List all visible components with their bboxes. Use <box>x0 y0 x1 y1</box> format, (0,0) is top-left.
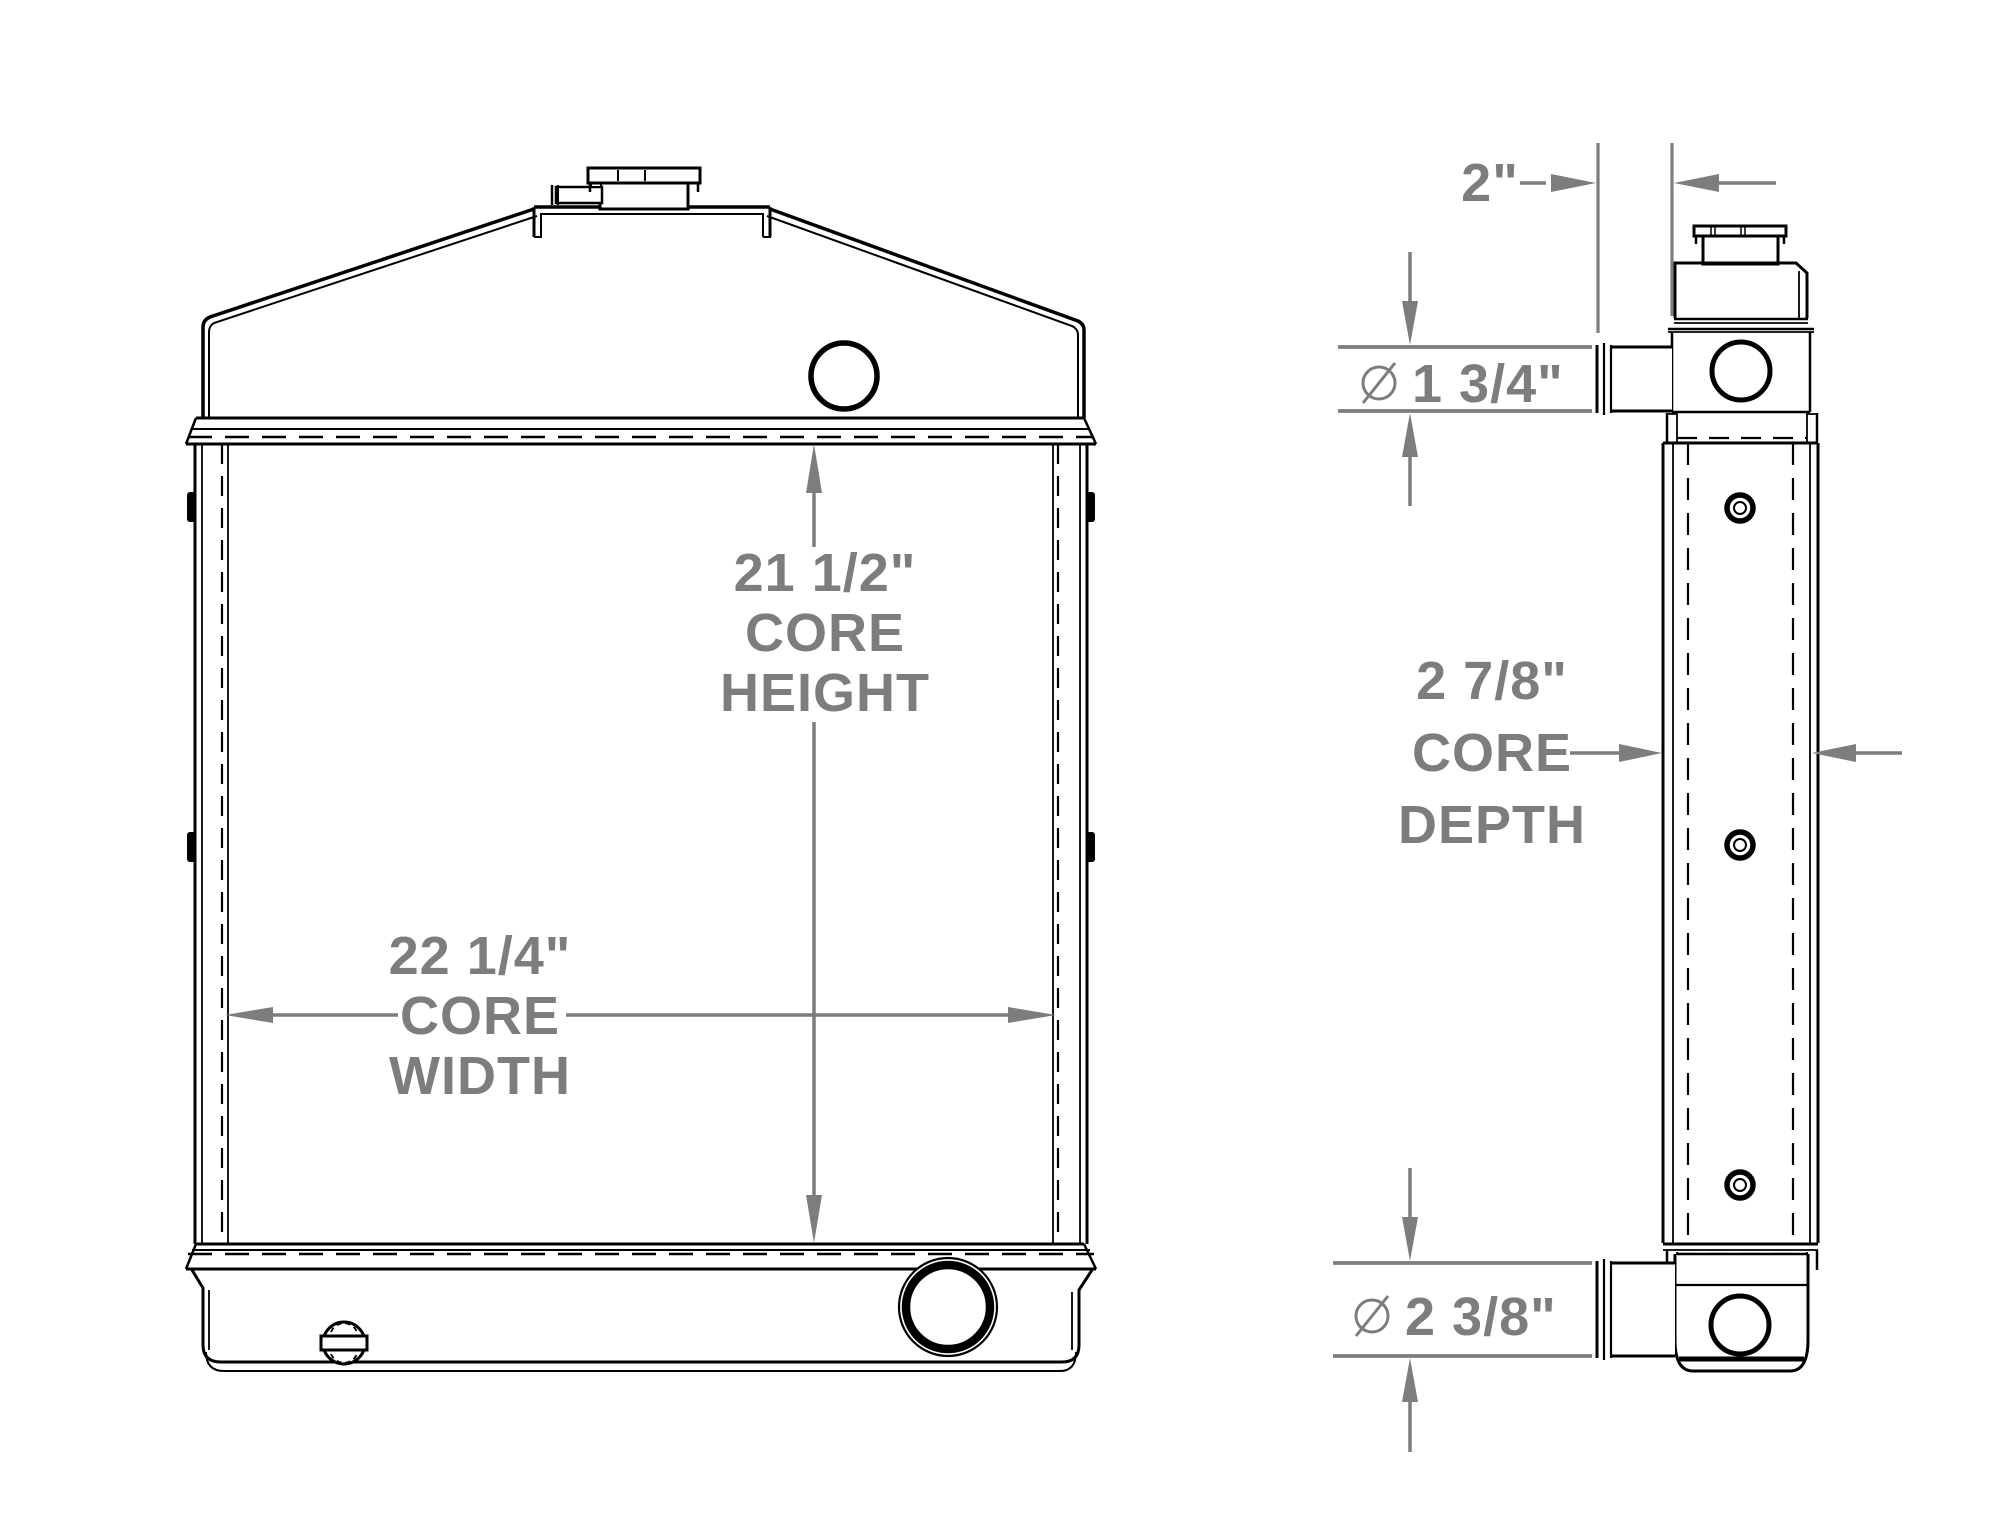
core-width-value: 22 1/4" <box>389 926 572 986</box>
side-core-bolt-2 <box>1727 832 1753 858</box>
front-drain-plug <box>321 1322 367 1364</box>
front-left-bracket-tab-upper <box>187 492 196 522</box>
core-depth-value: 2 7/8" <box>1416 651 1568 711</box>
side-bottom-tank <box>1597 1254 1808 1371</box>
side-core-bolt-3 <box>1727 1172 1753 1198</box>
front-right-bracket-tab-lower <box>1086 832 1095 862</box>
diameter-symbol-icon <box>1356 1296 1388 1336</box>
front-bottom-tank <box>192 1258 1092 1371</box>
side-top-tank <box>1597 263 1818 443</box>
core-height-label-2: HEIGHT <box>720 663 930 723</box>
arrow-left-icon <box>1674 174 1719 192</box>
core-height-label-1: CORE <box>745 603 905 663</box>
side-view: 2" 1 3/4" 2 7/8" CORE DEPTH <box>1333 143 1902 1452</box>
front-view: 21 1/2" CORE HEIGHT 22 1/4" CORE WIDTH <box>186 168 1096 1371</box>
side-lower-outlet-tube <box>1597 1259 1675 1360</box>
dim-core-width: 22 1/4" CORE WIDTH <box>225 926 1056 1106</box>
arrow-right-icon <box>1008 1007 1056 1023</box>
front-right-bracket-tab-upper <box>1086 492 1095 522</box>
core-width-label-1: CORE <box>400 986 560 1046</box>
lower-outlet-diameter-value: 2 3/8" <box>1405 1287 1557 1347</box>
core-width-label-2: WIDTH <box>389 1046 571 1106</box>
front-top-tank <box>203 168 1084 418</box>
dim-upper-outlet-diameter: 1 3/4" <box>1338 252 1592 506</box>
front-top-header-band <box>186 418 1096 444</box>
core-depth-label-2: DEPTH <box>1398 795 1586 855</box>
arrow-right-icon <box>1551 174 1596 192</box>
side-inlet-hole <box>1712 342 1770 400</box>
arrow-down-icon <box>1402 301 1418 345</box>
radiator-technical-drawing: 21 1/2" CORE HEIGHT 22 1/4" CORE WIDTH <box>0 0 2004 1514</box>
front-inlet-port <box>811 343 877 409</box>
arrow-left-icon <box>225 1007 273 1023</box>
dim-core-depth: 2 7/8" CORE DEPTH <box>1398 651 1902 855</box>
side-outlet-hole <box>1711 1296 1769 1354</box>
arrow-up-icon <box>1402 413 1418 457</box>
arrow-down-icon <box>806 1195 822 1243</box>
side-filler-cap <box>1694 226 1786 264</box>
diameter-symbol-icon <box>1363 363 1395 403</box>
arrow-down-icon <box>1402 1217 1418 1261</box>
core-height-value: 21 1/2" <box>734 543 917 603</box>
arrow-up-icon <box>1402 1358 1418 1402</box>
dim-core-height: 21 1/2" CORE HEIGHT <box>720 444 930 1243</box>
drawing-canvas: 21 1/2" CORE HEIGHT 22 1/4" CORE WIDTH <box>0 0 2004 1514</box>
front-outlet-port <box>899 1258 997 1356</box>
side-core <box>1663 443 1818 1270</box>
arrow-right-icon <box>1619 744 1662 762</box>
side-upper-outlet-tube <box>1597 343 1672 415</box>
arrow-up-icon <box>806 444 822 493</box>
upper-outlet-diameter-value: 1 3/4" <box>1412 354 1564 414</box>
top-offset-value: 2" <box>1461 153 1519 213</box>
front-filler-cap <box>552 168 700 209</box>
side-core-bolt-1 <box>1727 495 1753 521</box>
core-depth-label-1: CORE <box>1412 723 1572 783</box>
front-left-bracket-tab-lower <box>187 832 196 862</box>
front-core <box>187 444 1095 1244</box>
dim-lower-outlet-diameter: 2 3/8" <box>1333 1168 1592 1452</box>
